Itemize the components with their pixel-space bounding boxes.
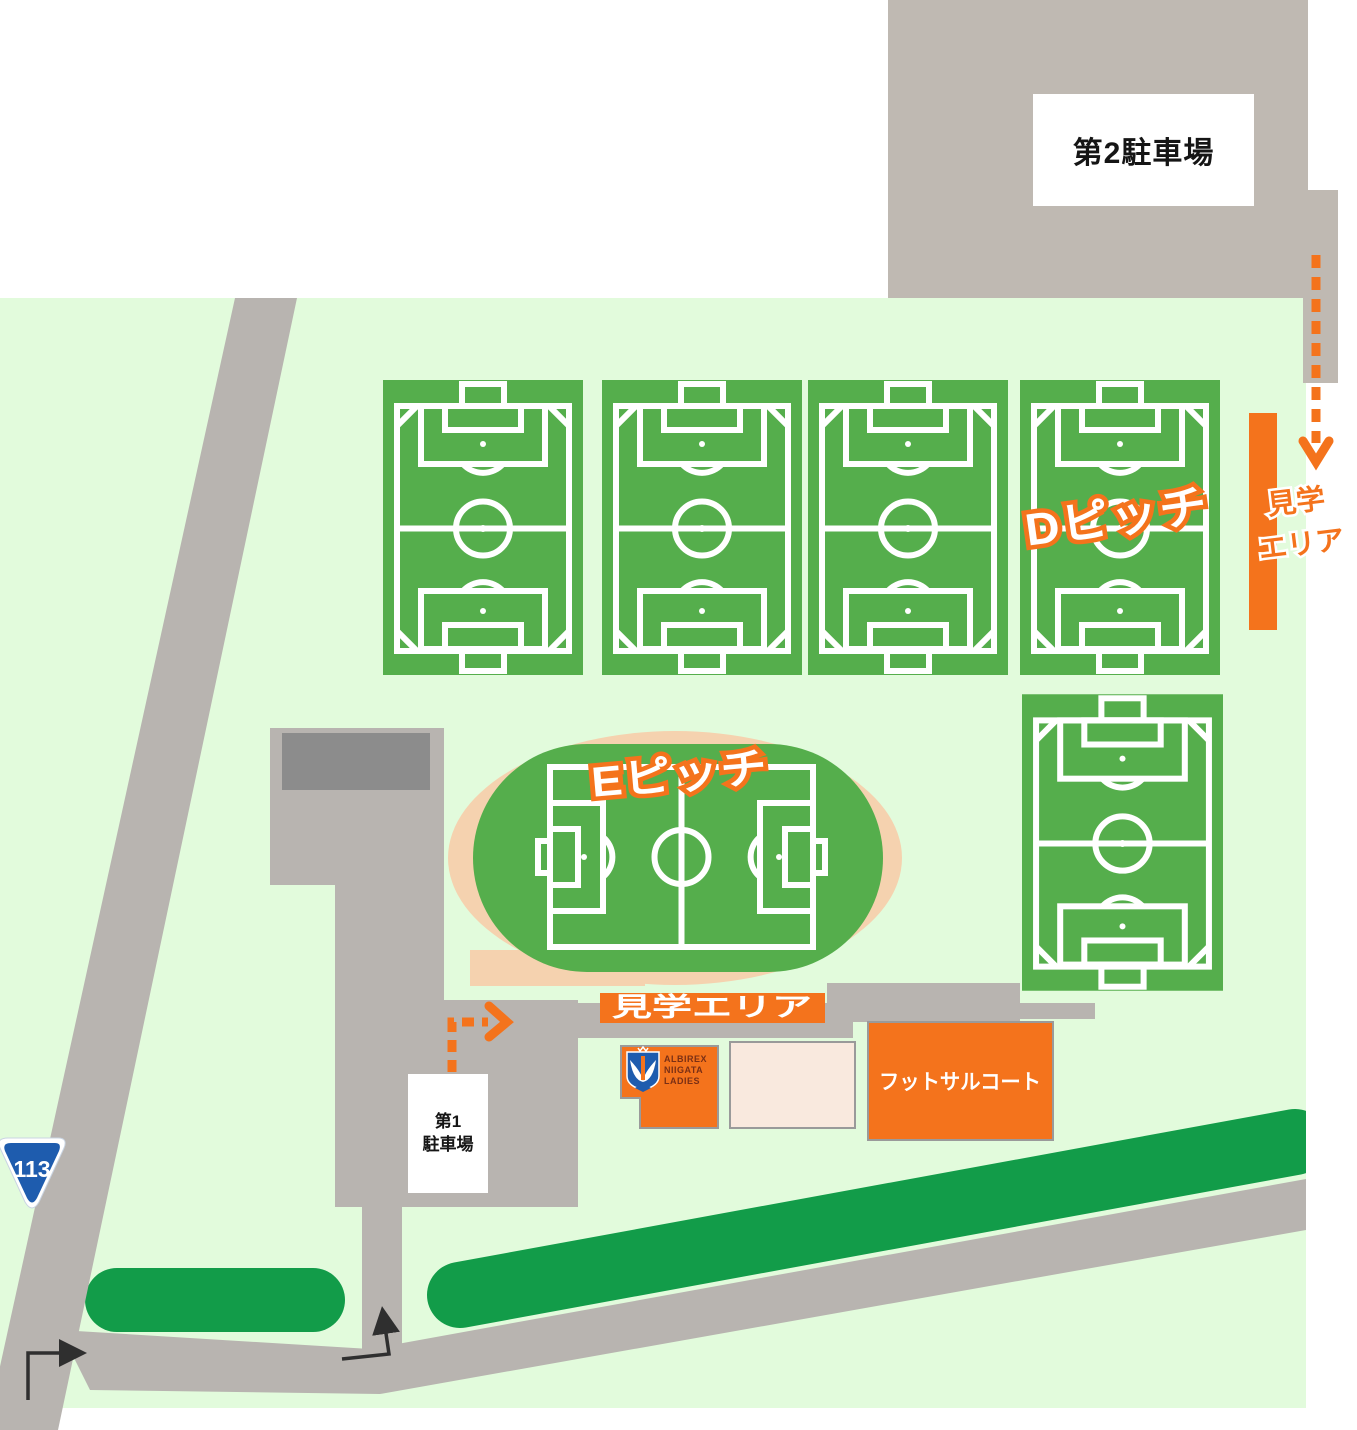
facility-map: ALBIREX NIIGATA LADIES 113 Dピッチ Eピッチ 見学 … <box>0 0 1357 1430</box>
parking-lot-1-label: 第1 駐車場 <box>408 1074 488 1193</box>
pitch-a <box>383 380 583 675</box>
pitch-east <box>1022 694 1223 990</box>
parking-lot-1-text-line2: 駐車場 <box>423 1134 474 1156</box>
svg-text:113: 113 <box>13 1156 50 1182</box>
parking-lot-2-label: 第2駐車場 <box>1033 94 1254 206</box>
parking-lot-1-text-line1: 第1 <box>435 1111 461 1133</box>
svg-text:ALBIREX: ALBIREX <box>664 1054 707 1064</box>
viewing-area-right-bar <box>1249 413 1277 630</box>
hedge-strip-left <box>85 1268 345 1332</box>
futsal-court-label: フットサルコート <box>879 1071 1041 1094</box>
maintenance-building <box>282 733 430 790</box>
pitch-b <box>602 380 802 675</box>
annex-building <box>730 1042 855 1128</box>
viewing-area-bottom-label: 見学エリア <box>612 992 812 1022</box>
albirex-crest <box>627 1047 659 1092</box>
map-canvas: ALBIREX NIIGATA LADIES 113 Dピッチ Eピッチ 見学 … <box>0 0 1357 1430</box>
pitch-c <box>808 380 1008 675</box>
svg-text:NIIGATA: NIIGATA <box>664 1065 703 1075</box>
svg-text:LADIES: LADIES <box>664 1076 700 1086</box>
parking-lot-2-text: 第2駐車場 <box>1073 128 1215 172</box>
